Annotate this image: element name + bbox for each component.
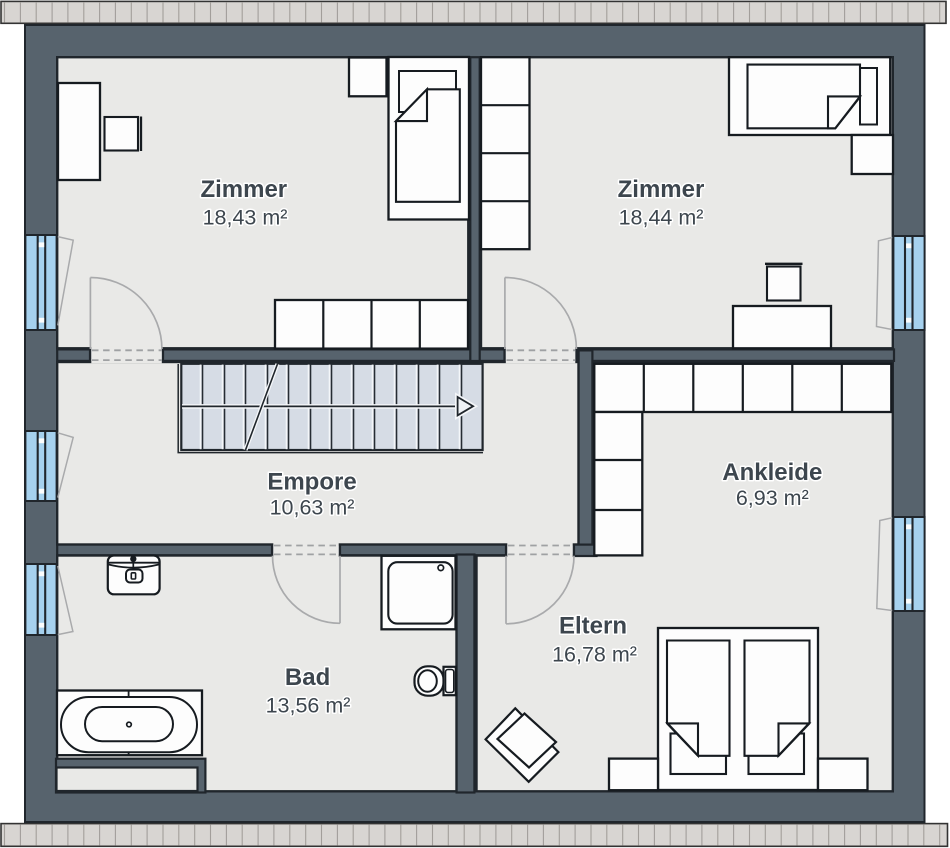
svg-text:16,78 m²: 16,78 m² [552, 643, 637, 667]
svg-text:6,93 m²: 6,93 m² [736, 486, 809, 510]
svg-text:Zimmer: Zimmer [618, 176, 705, 203]
svg-text:Eltern: Eltern [559, 613, 627, 640]
svg-text:Bad: Bad [285, 664, 330, 691]
svg-text:Ankleide: Ankleide [722, 459, 822, 486]
svg-text:18,43 m²: 18,43 m² [203, 206, 288, 230]
svg-text:10,63 m²: 10,63 m² [270, 496, 355, 520]
svg-text:18,44 m²: 18,44 m² [619, 206, 704, 230]
svg-text:Zimmer: Zimmer [200, 176, 287, 203]
svg-text:Empore: Empore [267, 469, 356, 496]
svg-text:13,56 m²: 13,56 m² [266, 694, 351, 718]
